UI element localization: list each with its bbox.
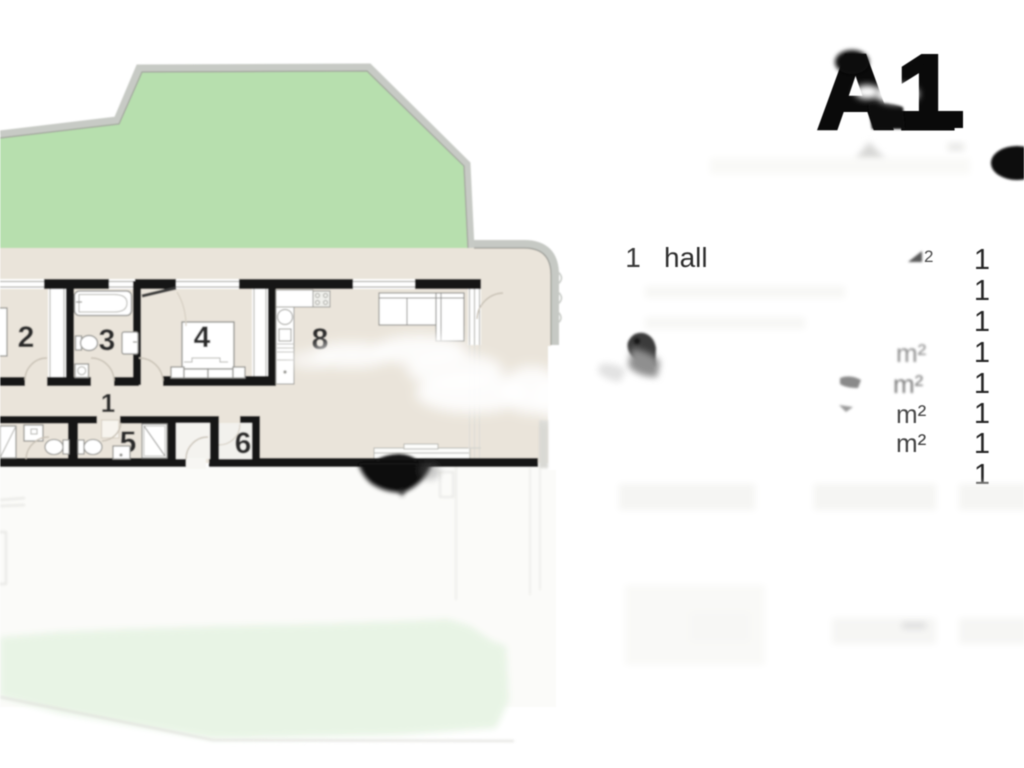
svg-text:1: 1 — [974, 244, 990, 276]
svg-text:4: 4 — [194, 321, 211, 354]
svg-text:3: 3 — [99, 324, 116, 357]
svg-text:1: 1 — [974, 275, 990, 307]
svg-text:1: 1 — [974, 368, 990, 400]
svg-text:m²: m² — [896, 338, 927, 368]
svg-text:1: 1 — [974, 337, 990, 369]
svg-text:1: 1 — [974, 428, 990, 460]
svg-text:1: 1 — [974, 306, 990, 338]
svg-text:6: 6 — [235, 427, 252, 460]
svg-text:m²: m² — [896, 428, 927, 458]
svg-text:m²: m² — [896, 399, 927, 429]
svg-text:hall: hall — [664, 242, 708, 273]
svg-text:2: 2 — [924, 247, 933, 266]
svg-text:1: 1 — [101, 388, 115, 418]
svg-text:m²: m² — [893, 369, 924, 399]
svg-text:1: 1 — [974, 398, 990, 430]
svg-text:1: 1 — [625, 242, 641, 273]
svg-text:2: 2 — [18, 321, 35, 354]
